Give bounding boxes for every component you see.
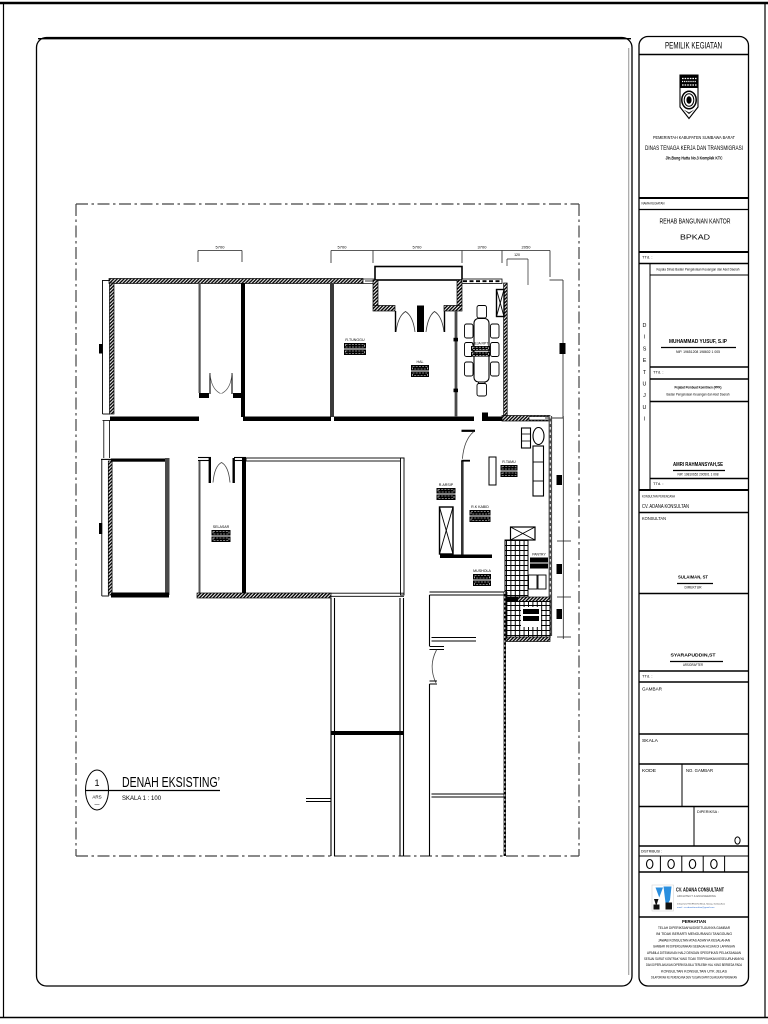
svg-text:TTd. :: TTd. : <box>653 481 663 486</box>
svg-text:E: E <box>643 358 647 364</box>
svg-text:ARCHITECT & ENGINEERING: ARCHITECT & ENGINEERING <box>677 894 716 898</box>
svg-text:J: J <box>643 393 646 399</box>
svg-text:PEMERINTAH KABUPATEN SUMBAWA B: PEMERINTAH KABUPATEN SUMBAWA BARAT <box>653 135 735 141</box>
svg-text:TTd. :: TTd. : <box>653 370 663 375</box>
svg-text:PANTRY: PANTRY <box>532 553 546 557</box>
svg-text:D: D <box>643 323 647 329</box>
svg-text:5700: 5700 <box>216 245 226 250</box>
svg-text:SKALA 1 : 100: SKALA 1 : 100 <box>122 796 162 802</box>
svg-text:5700: 5700 <box>338 245 348 250</box>
svg-text:R.TAMU: R.TAMU <box>502 460 516 464</box>
svg-text:GAMBAR INI DIPERGUNAKAN SEBAGA: GAMBAR INI DIPERGUNAKAN SEBAGAI ACUAN DI… <box>653 945 736 949</box>
svg-text:R.ARSIP: R.ARSIP <box>439 483 454 487</box>
svg-text:NIP. 19651208 198602 1 005: NIP. 19651208 198602 1 005 <box>676 350 720 354</box>
svg-text:PERHATIAN: PERHATIAN <box>682 919 706 924</box>
svg-text:S: S <box>643 346 647 352</box>
svg-text:Kepala Dinas Badan Pengelolaan: Kepala Dinas Badan Pengelolaan Keuangan … <box>657 268 740 272</box>
svg-text:CV. ADANA CONSULTANT: CV. ADANA CONSULTANT <box>676 888 724 894</box>
svg-text:120: 120 <box>514 253 520 257</box>
svg-text:1: 1 <box>94 778 99 788</box>
svg-text:SULAIMAN, ST: SULAIMAN, ST <box>678 575 708 581</box>
svg-text:SESUAI SURAT KONTRAK YANG TIDA: SESUAI SURAT KONTRAK YANG TIDAK TERPISAH… <box>644 957 745 961</box>
svg-text:KONSULTAN PERENCANA: KONSULTAN PERENCANA <box>642 495 675 499</box>
svg-text:NIP. 19810652 200501 1 008: NIP. 19810652 200501 1 008 <box>678 473 719 477</box>
svg-text:email : cv.adanakonsultan@gmai: email : cv.adanakonsultan@gmail.com <box>677 906 714 909</box>
svg-text:MUHAMMAD YUSUF, S.IP: MUHAMMAD YUSUF, S.IP <box>669 339 727 345</box>
svg-text:3700: 3700 <box>478 245 488 250</box>
svg-text:SYARAPUDDIN,ST: SYARAPUDDIN,ST <box>671 653 716 659</box>
svg-text:NO. GAMBAR: NO. GAMBAR <box>686 768 713 774</box>
svg-text:Jl.Bung Karno RT.05 RW.02 Kel.: Jl.Bung Karno RT.05 RW.02 Kel.Menala, Ta… <box>677 903 725 906</box>
svg-text:DAN DIPERLAKUKAN DIPERIKSA BIL: DAN DIPERLAKUKAN DIPERIKSA BILA TERLEBIH… <box>646 963 743 967</box>
svg-text:TTd. :: TTd. : <box>642 674 652 679</box>
svg-text:SKALA: SKALA <box>642 738 659 744</box>
svg-text:ARS: ARS <box>92 795 101 800</box>
svg-text:U: U <box>643 382 647 388</box>
svg-text:R.TUNGGU: R.TUNGGU <box>345 338 365 342</box>
svg-text:PEMILIK KEGIATAN: PEMILIK KEGIATAN <box>665 41 722 51</box>
svg-text:I: I <box>644 417 646 423</box>
svg-text:—: — <box>95 802 100 808</box>
svg-text:APABILA DITEMUKAN HAL2 DENGAN: APABILA DITEMUKAN HAL2 DENGAN SPESIFIKAS… <box>647 951 742 955</box>
svg-text:TTd. :: TTd. : <box>642 255 652 260</box>
svg-text:KONSULTAN KONSULTAN UTK JELAS: KONSULTAN KONSULTAN UTK JELAS <box>661 969 728 973</box>
svg-text:Badan Pengelolaan Keuangan dan: Badan Pengelolaan Keuangan dan Aset Daer… <box>667 393 730 397</box>
svg-text:2050: 2050 <box>522 245 532 250</box>
svg-text:AMRI RAHMANSYAH,SE: AMRI RAHMANSYAH,SE <box>673 462 723 468</box>
svg-text:DISTRIBUSI :: DISTRIBUSI : <box>641 849 662 854</box>
svg-text:5700: 5700 <box>413 245 423 250</box>
svg-text:DINAS TENAGA KERJA DAN TRANSMI: DINAS TENAGA KERJA DAN TRANSMIGRASI <box>645 145 743 152</box>
svg-text:HAL: HAL <box>417 360 424 364</box>
svg-text:CV. ADANA KONSULTAN: CV. ADANA KONSULTAN <box>642 504 689 510</box>
svg-text:ARS/DRAFTER: ARS/DRAFTER <box>683 663 703 667</box>
svg-text:U: U <box>643 405 647 411</box>
svg-text:KONSULTAN: KONSULTAN <box>642 516 666 522</box>
svg-text:REHAB BANGUNAN KANTOR: REHAB BANGUNAN KANTOR <box>660 217 731 226</box>
svg-text:BPKAD: BPKAD <box>680 233 710 242</box>
svg-text:MEJA RPT: MEJA RPT <box>472 342 489 346</box>
svg-text:INI TIDAK BERARTI MENGURANGI T: INI TIDAK BERARTI MENGURANGI TANGGUNG <box>656 932 732 936</box>
svg-text:NAMA KEGIATAN: NAMA KEGIATAN <box>642 201 665 206</box>
svg-text:Pejabat Pembuat Komitmen (PPK): Pejabat Pembuat Komitmen (PPK) <box>675 385 722 390</box>
svg-text:I: I <box>644 335 646 341</box>
svg-text:MUSHOLA: MUSHOLA <box>473 569 491 573</box>
svg-text:SELASAR: SELASAR <box>213 525 230 529</box>
svg-text:DILAPORKAN KE PERENCANA DGN TU: DILAPORKAN KE PERENCANA DGN TUJUAN DAPAT… <box>651 976 737 980</box>
svg-text:Jln.Bung Hatta No.3 Komplek KT: Jln.Bung Hatta No.3 Komplek KTC <box>666 156 724 161</box>
svg-text:R.K KABID: R.K KABID <box>471 505 489 509</box>
svg-text:JAWAB KONSULTAN ATAS ADANYA KE: JAWAB KONSULTAN ATAS ADANYA KESALAHAN <box>658 938 731 942</box>
svg-text:KODE: KODE <box>642 768 657 774</box>
svg-text:DENAH EKSISTING’: DENAH EKSISTING’ <box>122 775 220 791</box>
svg-text:TELAH DIPERIKSANYA/DISETUJUINY: TELAH DIPERIKSANYA/DISETUJUINYA GAMBAR <box>658 926 731 930</box>
svg-text:DIPERIKSA :: DIPERIKSA : <box>697 809 719 814</box>
svg-text:DIREKTUR: DIREKTUR <box>685 586 702 590</box>
svg-text:GAMBAR: GAMBAR <box>642 687 662 693</box>
